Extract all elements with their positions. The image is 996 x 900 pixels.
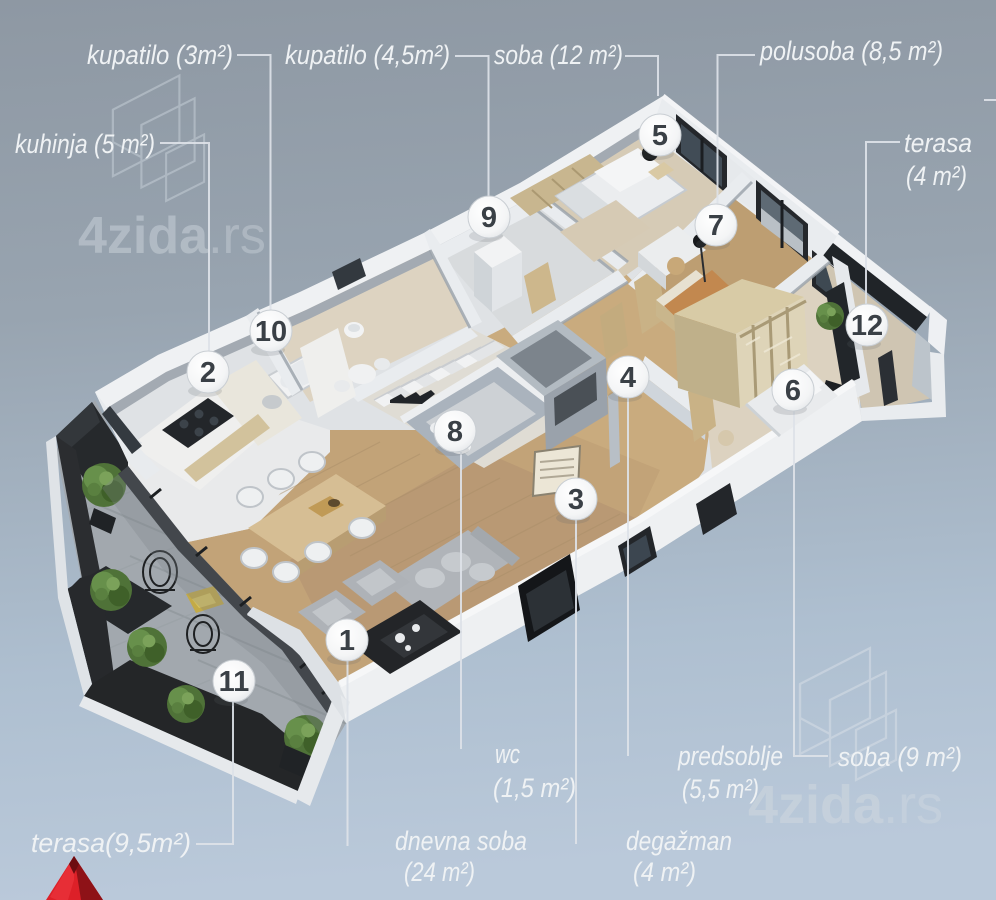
svg-text:polusoba (8,5 m²): polusoba (8,5 m²) (759, 36, 943, 66)
svg-text:11: 11 (219, 666, 250, 698)
svg-text:degažman: degažman (626, 826, 732, 856)
svg-text:kupatilo (4,5m²): kupatilo (4,5m²) (285, 40, 450, 70)
svg-text:(1,5 m²): (1,5 m²) (493, 773, 576, 803)
svg-text:4: 4 (620, 362, 636, 394)
svg-text:soba (9 m²): soba (9 m²) (838, 742, 962, 772)
svg-text:dnevna soba: dnevna soba (395, 826, 527, 856)
svg-text:wc: wc (495, 739, 520, 769)
svg-text:predsoblje: predsoblje (677, 741, 783, 771)
svg-text:6: 6 (785, 375, 801, 407)
svg-text:7: 7 (708, 210, 724, 242)
svg-text:2: 2 (200, 357, 216, 389)
svg-text:9: 9 (481, 202, 497, 234)
svg-text:(4 m²): (4 m²) (906, 161, 967, 191)
svg-text:1: 1 (339, 625, 355, 657)
svg-text:4zida.rs: 4zida.rs (78, 207, 266, 265)
svg-text:10: 10 (255, 316, 287, 348)
svg-text:kupatilo (3m²): kupatilo (3m²) (87, 40, 233, 70)
svg-text:3: 3 (568, 484, 584, 516)
svg-text:12: 12 (851, 310, 883, 342)
svg-text:terasa: terasa (904, 128, 972, 158)
svg-text:8: 8 (447, 416, 463, 448)
svg-text:(4 m²): (4 m²) (633, 857, 696, 887)
svg-text:5: 5 (652, 120, 668, 152)
svg-text:terasa(9,5m²): terasa(9,5m²) (31, 828, 191, 858)
svg-text:(5,5 m²): (5,5 m²) (682, 774, 759, 804)
svg-text:4zida.rs: 4zida.rs (748, 775, 943, 835)
svg-text:kuhinja (5 m²): kuhinja (5 m²) (15, 129, 155, 159)
svg-text:soba (12 m²): soba (12 m²) (494, 40, 623, 70)
svg-text:(24 m²): (24 m²) (404, 857, 475, 887)
